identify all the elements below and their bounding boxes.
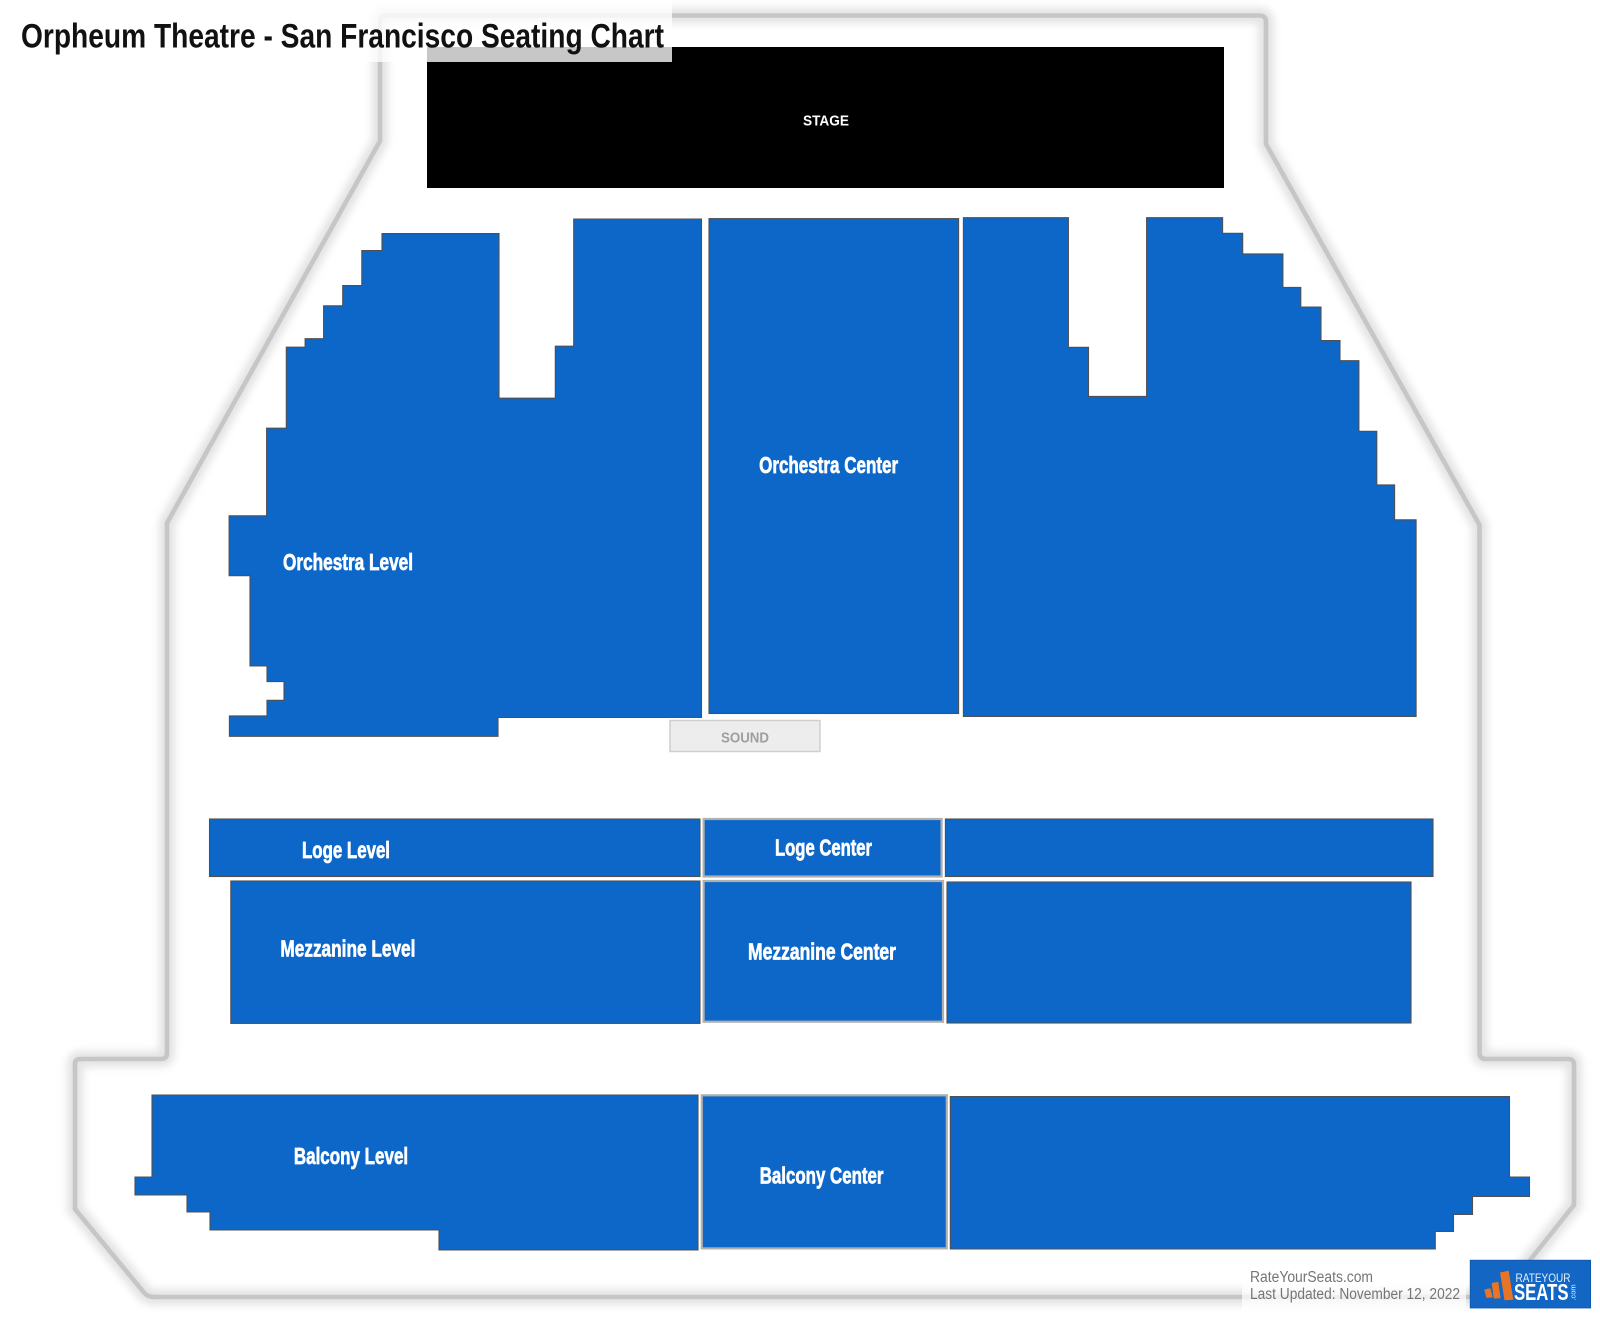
svg-text:Last Updated: November 12, 202: Last Updated: November 12, 2022 xyxy=(1250,1286,1460,1303)
svg-text:Balcony Center: Balcony Center xyxy=(760,1163,884,1189)
svg-text:Loge Center: Loge Center xyxy=(775,835,872,861)
svg-text:Balcony Level: Balcony Level xyxy=(294,1143,408,1169)
svg-text:Mezzanine Center: Mezzanine Center xyxy=(748,939,896,965)
svg-text:STAGE: STAGE xyxy=(803,112,849,129)
svg-text:SEATS: SEATS xyxy=(1514,1279,1569,1305)
svg-text:.com: .com xyxy=(1569,1284,1578,1300)
svg-text:RateYourSeats.com: RateYourSeats.com xyxy=(1250,1269,1373,1286)
svg-text:Orchestra Level: Orchestra Level xyxy=(283,549,413,575)
svg-text:Orchestra Center: Orchestra Center xyxy=(759,452,898,478)
svg-text:Orpheum Theatre - San Francisc: Orpheum Theatre - San Francisco Seating … xyxy=(21,18,664,56)
svg-text:Loge Level: Loge Level xyxy=(302,837,390,863)
svg-text:SOUND: SOUND xyxy=(721,730,769,746)
svg-text:Mezzanine Level: Mezzanine Level xyxy=(280,936,415,962)
